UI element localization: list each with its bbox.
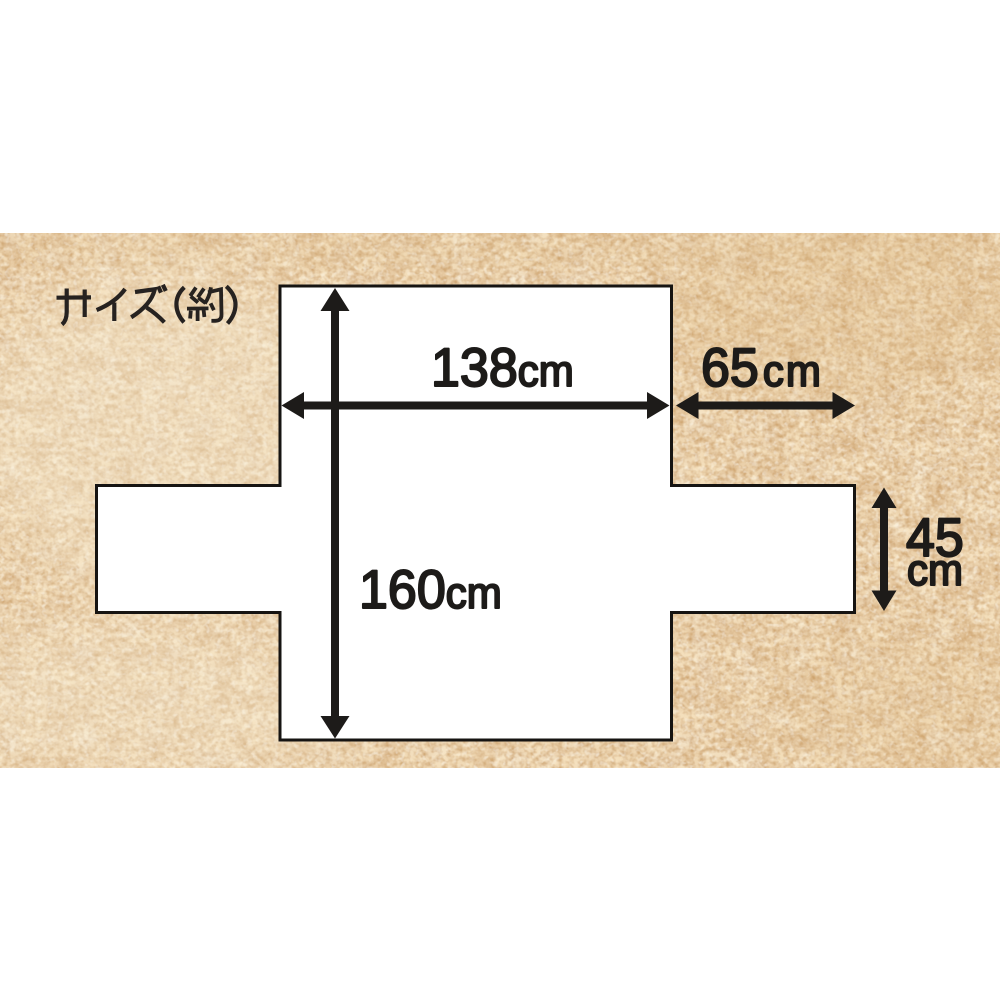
svg-text:160cm: 160cm xyxy=(359,560,502,621)
svg-text:cm: cm xyxy=(907,545,963,594)
svg-text:65cm: 65cm xyxy=(701,338,823,399)
svg-text:138cm: 138cm xyxy=(431,338,574,399)
